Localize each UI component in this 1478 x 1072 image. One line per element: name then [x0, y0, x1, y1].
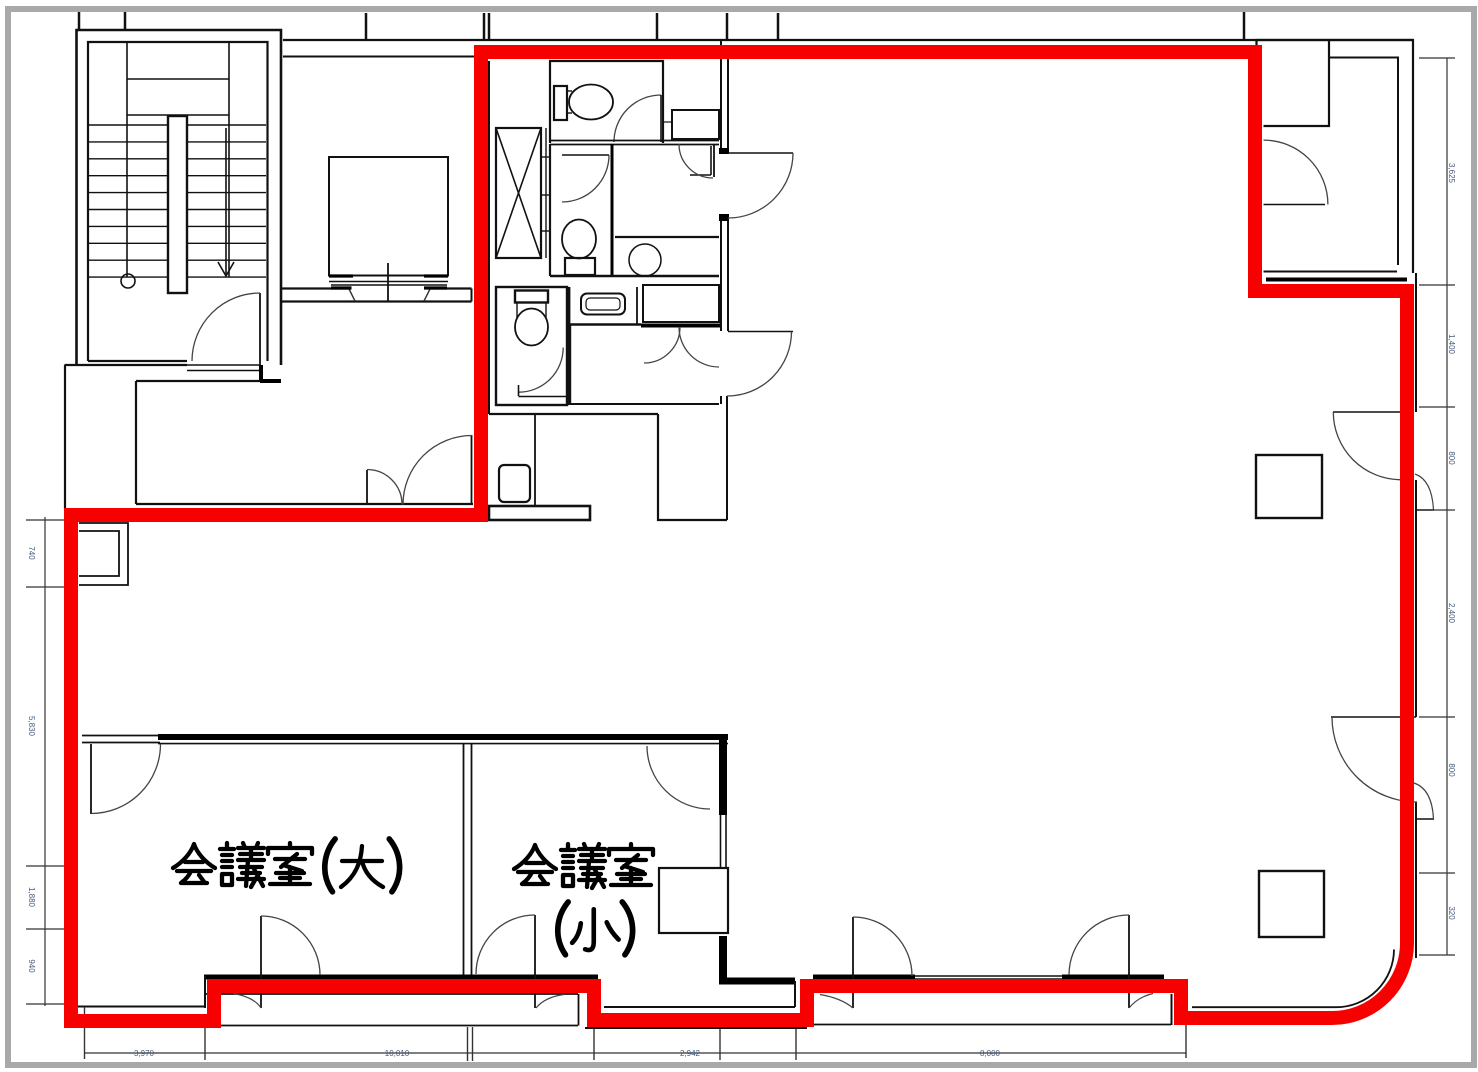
svg-text:800: 800	[1447, 451, 1456, 465]
svg-text:1,400: 1,400	[1447, 334, 1456, 355]
svg-text:2,942: 2,942	[680, 1049, 701, 1058]
svg-text:1,880: 1,880	[27, 887, 36, 908]
svg-text:940: 940	[27, 959, 36, 973]
svg-text:740: 740	[27, 546, 36, 560]
svg-text:10,010: 10,010	[385, 1049, 410, 1058]
svg-text:3,970: 3,970	[134, 1049, 155, 1058]
svg-text:2,400: 2,400	[1447, 603, 1456, 624]
svg-text:8,000: 8,000	[980, 1049, 1001, 1058]
svg-text:320: 320	[1447, 906, 1456, 920]
svg-text:3,625: 3,625	[1447, 163, 1456, 184]
svg-text:5,830: 5,830	[27, 716, 36, 737]
svg-text:800: 800	[1447, 763, 1456, 777]
